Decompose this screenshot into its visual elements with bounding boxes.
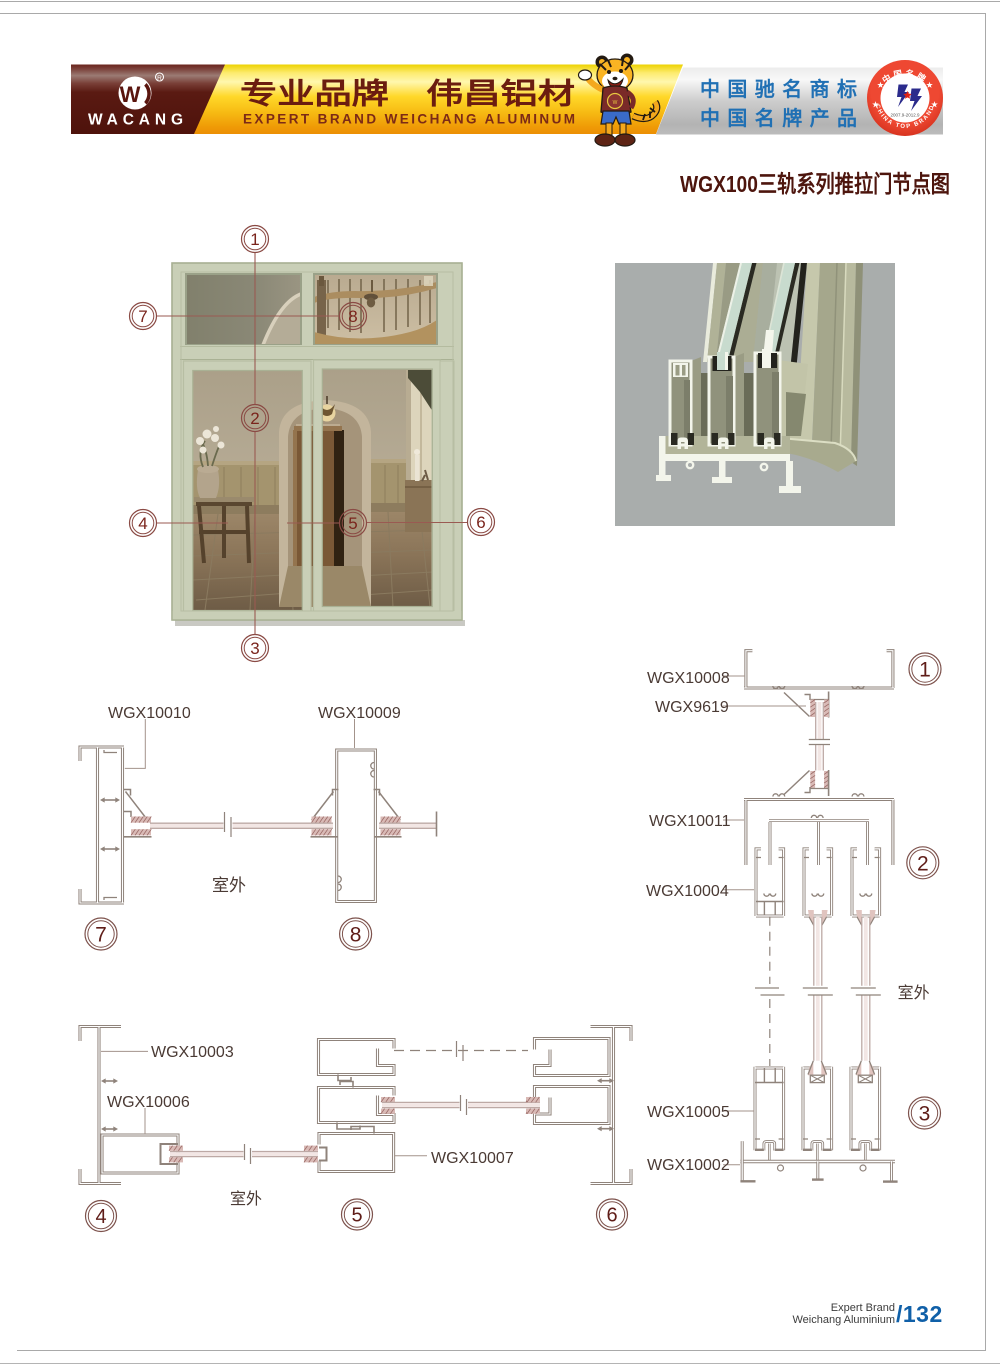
svg-text:2: 2 (250, 409, 259, 428)
svg-text:室外: 室外 (898, 984, 930, 1002)
svg-text:8: 8 (348, 307, 357, 326)
svg-text:WGX10011: WGX10011 (649, 813, 731, 830)
svg-text:WGX10007: WGX10007 (431, 1150, 514, 1167)
svg-text:2007.9-2012.9: 2007.9-2012.9 (890, 113, 920, 118)
svg-text:W: W (613, 100, 618, 106)
svg-text:W: W (120, 82, 141, 107)
svg-text:4: 4 (138, 514, 147, 533)
svg-text:2: 2 (917, 852, 929, 875)
svg-text:5: 5 (348, 514, 357, 533)
svg-text:WGX10005: WGX10005 (647, 1104, 730, 1121)
svg-text:8: 8 (350, 924, 362, 947)
svg-text:5: 5 (351, 1205, 362, 1227)
svg-text:6: 6 (606, 1205, 617, 1227)
svg-text:3: 3 (919, 1103, 931, 1126)
svg-text:WGX10009: WGX10009 (318, 705, 401, 722)
svg-text:WGX10003: WGX10003 (151, 1044, 234, 1061)
svg-text:7: 7 (138, 307, 147, 326)
svg-text:室外: 室外 (212, 876, 246, 895)
svg-text:WGX100三轨系列推拉门节点图: WGX100三轨系列推拉门节点图 (680, 170, 950, 197)
svg-text:1: 1 (919, 659, 931, 682)
svg-text:WGX10010: WGX10010 (108, 705, 191, 722)
svg-text:1: 1 (250, 230, 259, 249)
svg-text:WGX10004: WGX10004 (646, 883, 729, 900)
svg-text:4: 4 (95, 1206, 106, 1228)
svg-text:R: R (157, 75, 162, 82)
svg-text:3: 3 (250, 639, 259, 658)
svg-text:WGX9619: WGX9619 (655, 699, 729, 716)
svg-text:室外: 室外 (230, 1190, 262, 1208)
svg-text:专业品牌 伟昌铝材: 专业品牌 伟昌铝材 (240, 77, 575, 111)
svg-text:WGX10008: WGX10008 (647, 670, 730, 687)
svg-text:WGX10002: WGX10002 (647, 1157, 730, 1174)
svg-text:7: 7 (95, 924, 107, 947)
svg-text:6: 6 (476, 513, 485, 532)
svg-text:WGX10006: WGX10006 (107, 1094, 190, 1111)
